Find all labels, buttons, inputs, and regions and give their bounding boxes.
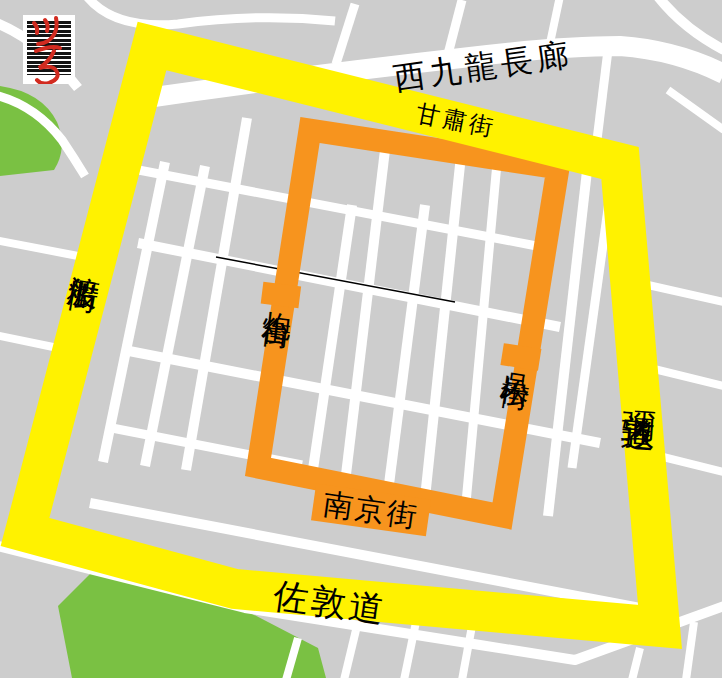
logo-stamp xyxy=(23,15,75,84)
label-nathan-road: 彌敦道 xyxy=(623,382,659,396)
street-map: 西九龍長廊 甘肅街 渡船街 彌敦道 佐敦道 炮台街 吳松街 南京街 xyxy=(0,0,722,678)
logo-calligraphy-icon xyxy=(23,15,75,84)
map-canvas xyxy=(0,0,722,678)
label-battery-street: 炮台街 xyxy=(261,282,302,308)
